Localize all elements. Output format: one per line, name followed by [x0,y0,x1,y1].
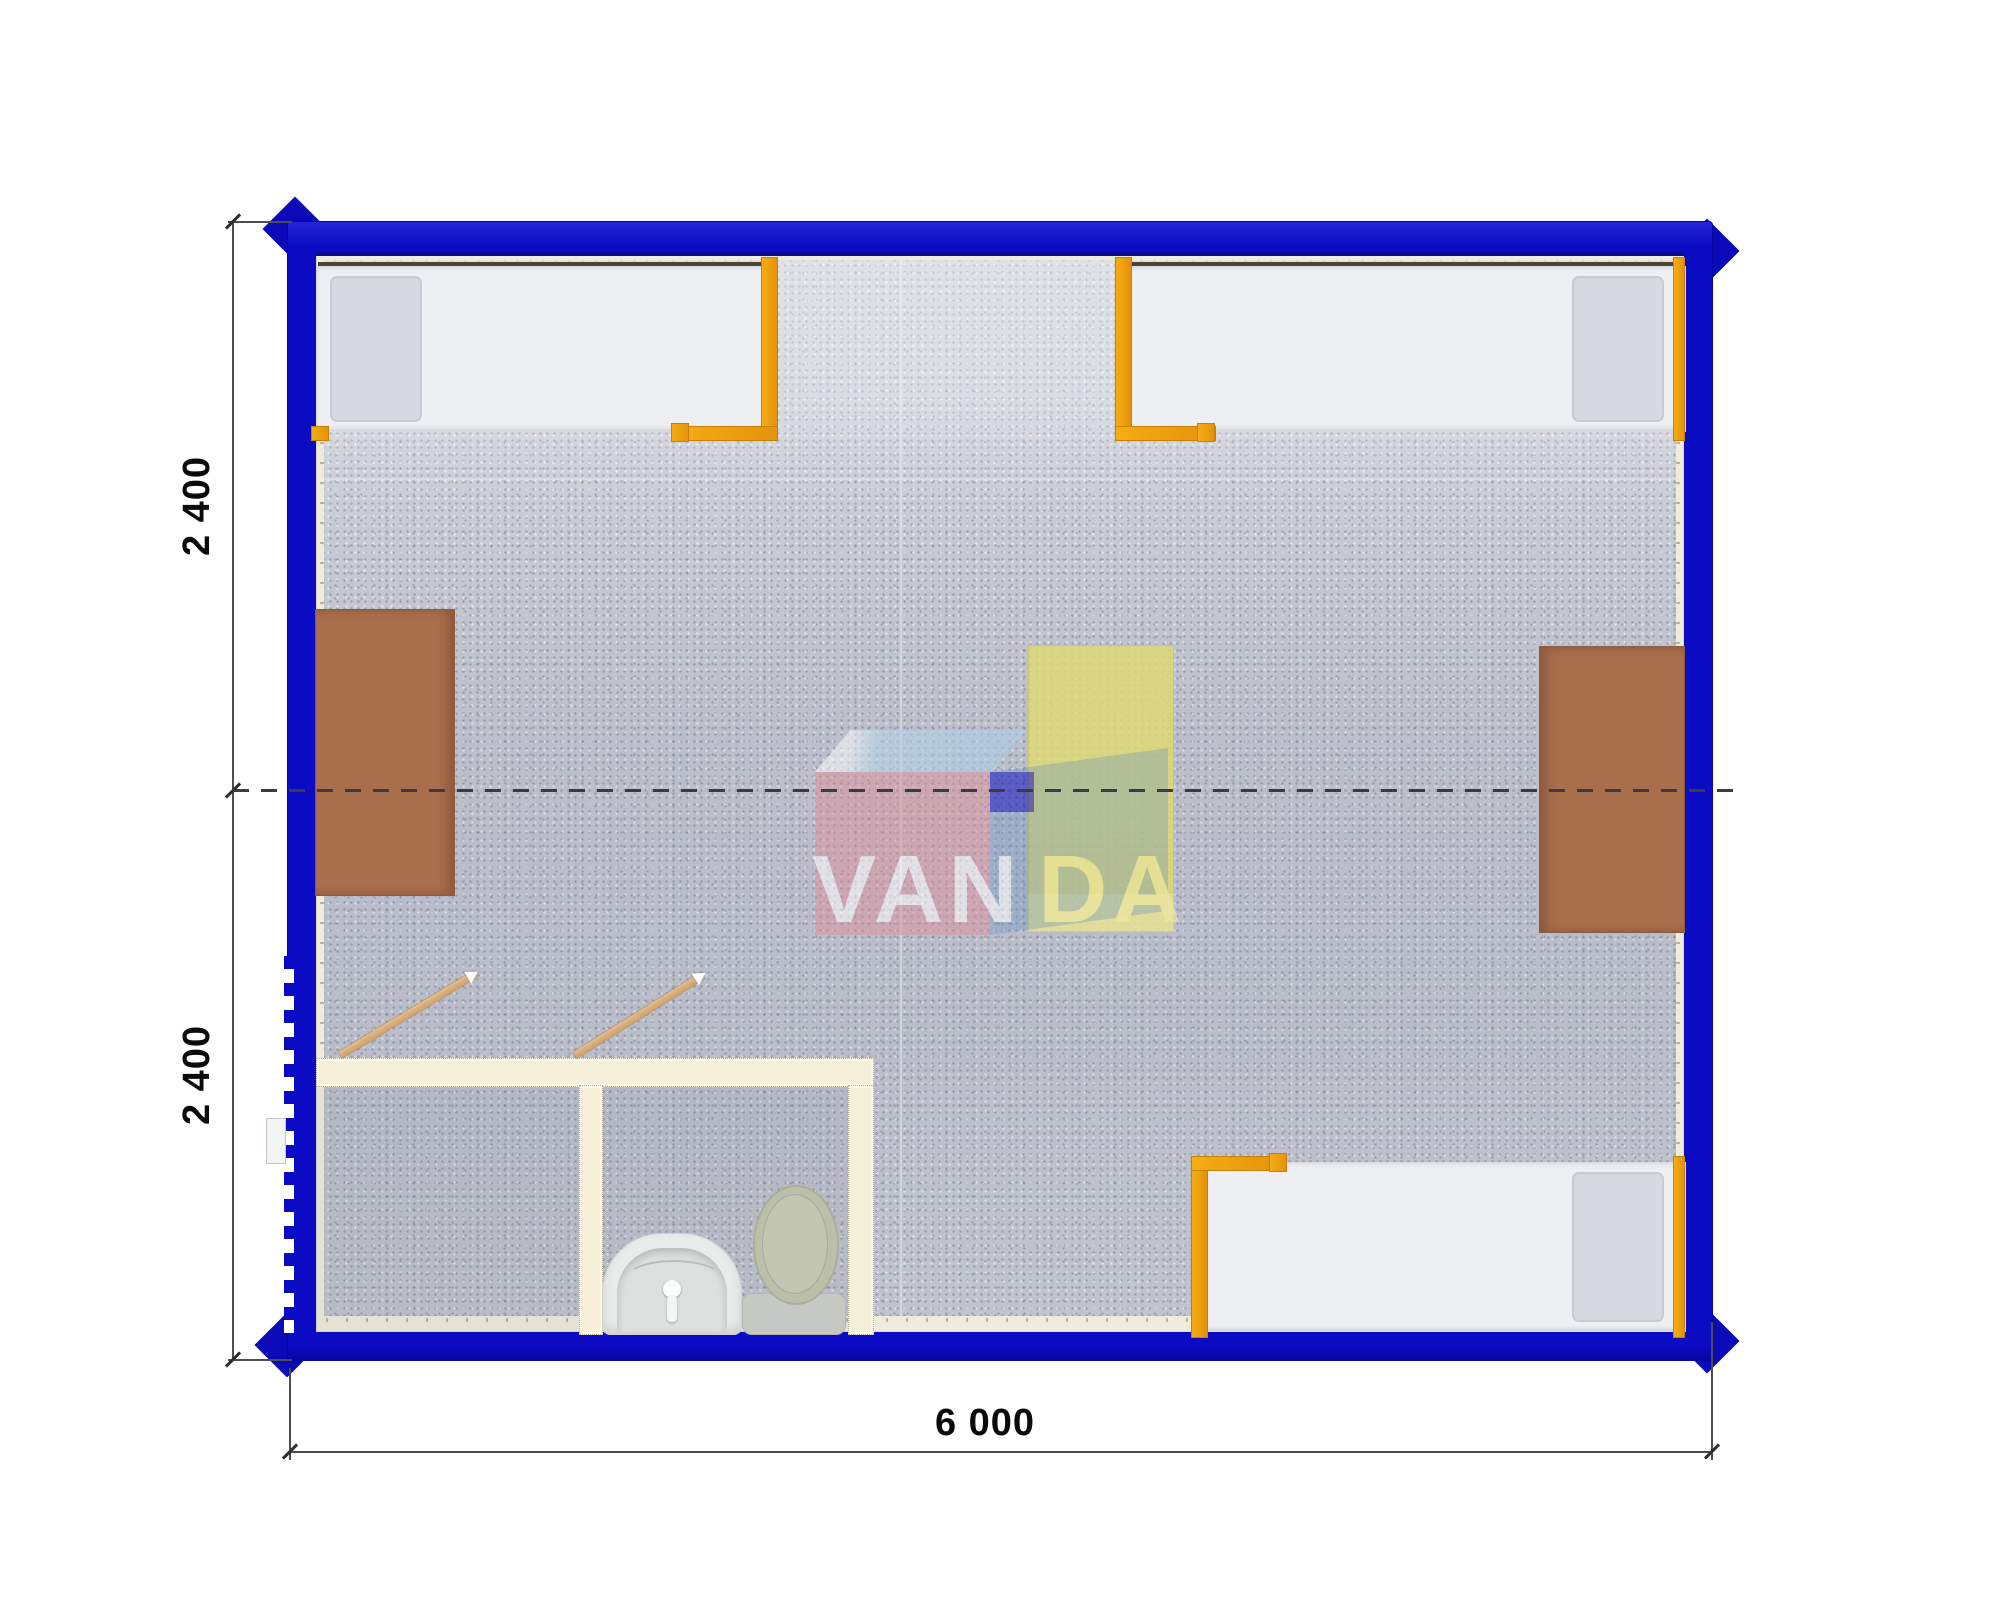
dimension-label-bottom: 6 000 [885,1402,1085,1446]
dimension-line-bottom [290,1451,1712,1453]
dimension-extension-bottom-start [289,1368,291,1460]
dimension-extension-bottom-left [228,1359,292,1361]
watermark-text-da: DA [1038,842,1218,938]
dimension-label-side-top: 2 400 [176,421,220,591]
logo-center-square [990,772,1034,812]
dimension-label-side-bottom: 2 400 [176,990,220,1160]
watermark-text-van: VAN [812,842,1042,938]
dimension-extension-bottom-end [1711,1322,1713,1460]
dimension-extension-top-left [228,221,292,223]
center-axis-line [233,789,1745,792]
logo-box-top-face [815,730,1027,772]
floor-plan-canvas: VAN DA 2 400 2 400 6 000 [0,0,2000,1622]
watermark-logo: VAN DA [0,0,2000,1622]
